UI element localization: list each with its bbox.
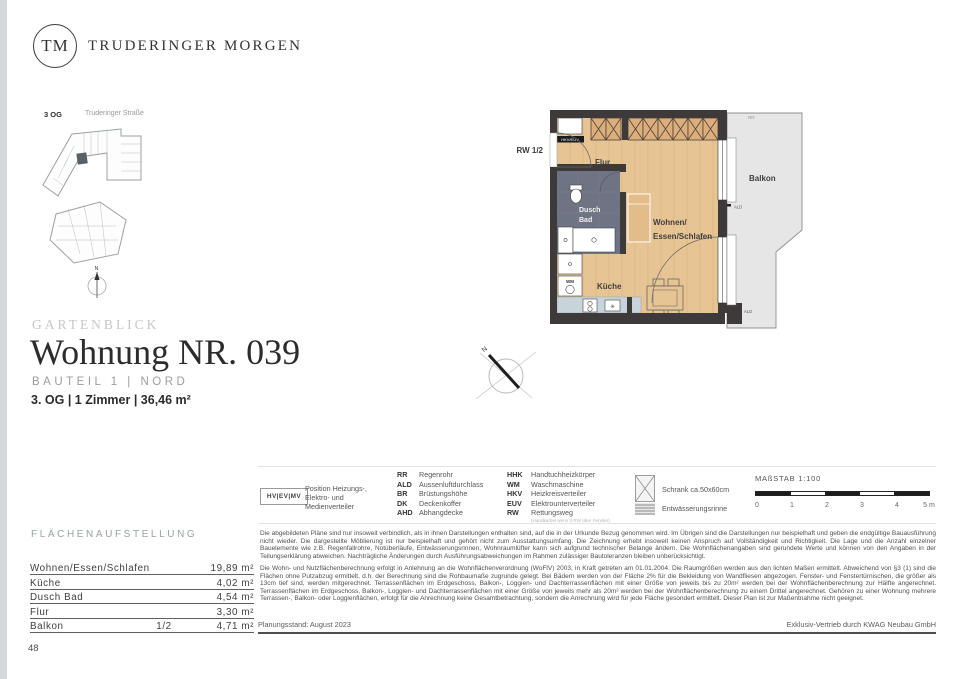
siteplan-north-arrow-icon: N (88, 266, 106, 298)
rettungsweg-note: (Handkurbel wenn 2.RW über Fenster) (507, 518, 632, 523)
washing-machine-label: WM (566, 279, 574, 284)
scale-segment (825, 492, 860, 495)
room-label-wohnen-2: Essen/Schlafen (653, 232, 712, 241)
hvevmv-cabinet (558, 118, 582, 134)
building-section-label: BAUTEIL 1 | NORD (32, 376, 188, 388)
disclaimer-paragraph-1: Die abgebildeten Pläne sind nur insoweit… (260, 530, 936, 560)
annotation-rr: RR (748, 115, 755, 120)
wall-bottom (550, 313, 725, 324)
annotation-ald-top: ALD (734, 205, 742, 210)
brand-logo-icon: TM (33, 24, 77, 68)
divider-top (258, 466, 936, 467)
page-edge-strip (0, 0, 7, 679)
wall-left-lower (550, 167, 557, 313)
siteplan-north-label: N (95, 266, 99, 272)
room-label-dusch: Dusch (579, 207, 600, 214)
table-row: Dusch Bad 4,54 m² (30, 590, 254, 604)
entrance-opening (550, 133, 557, 167)
brand-name: TRUDERINGER MORGEN (88, 38, 302, 55)
wall-stub-balcony (727, 303, 742, 324)
schrank-label: Schrank ca.50x60cm (662, 485, 729, 494)
scale-tick: 0 (755, 502, 759, 509)
hvevmv-description: Position Heizungs-, Elektro- und Medienv… (305, 484, 383, 511)
bathroom-wall-seg1 (620, 164, 626, 172)
legend-item: RWRettungsweg (507, 508, 632, 518)
legend-item: HHKHandtuchheizkörper (507, 470, 632, 480)
closet-divider-wall (622, 118, 628, 140)
legend-item: ALDAussenluftdurchlass (397, 480, 515, 490)
siteplan-upper-wing (43, 129, 141, 196)
room-label-wohnen-1: Wohnen/ (653, 218, 687, 227)
scale-tick: 2 (825, 502, 829, 509)
legend-item: AHDAbhangdecke (397, 508, 515, 518)
footer-rule (258, 632, 936, 634)
siteplan-drawing: N (28, 122, 168, 307)
balcony-area (727, 113, 802, 328)
escape-route-label: RW 1/2 (503, 146, 543, 155)
areas-heading: FLÄCHENAUFSTELLUNG (31, 529, 197, 540)
table-row: Wohnen/Essen/Schlafen 19,89 m² (30, 561, 254, 575)
scale-tick: 4 (895, 502, 899, 509)
scale-segment (791, 492, 826, 495)
scale-bar (755, 491, 930, 496)
wall-right-seg2 (718, 200, 727, 237)
fan-symbol-icon: ✳ (610, 304, 615, 311)
bathroom-wall-seg2 (620, 192, 626, 254)
areas-table: Wohnen/Essen/Schlafen 19,89 m² Küche 4,0… (30, 561, 254, 633)
compass-north-label: N (481, 345, 489, 354)
legend-column-2: HHKHandtuchheizkörper WMWaschmaschine HK… (507, 470, 632, 523)
siteplan-street-label: Truderinger Straße (85, 110, 144, 117)
shower-tray (558, 227, 573, 253)
table-row: Balkon 1/2 4,71 m² (30, 619, 254, 633)
distribution-credit: Exklusiv-Vertrieb durch KWAG Neubau GmbH (600, 620, 936, 629)
legend-item: WMWaschmaschine (507, 480, 632, 490)
scale-tick: 5 m (923, 502, 935, 509)
hvevmv-legend-box: HV|EV|MV (260, 488, 308, 505)
scale-segment (860, 492, 895, 495)
bathroom-top-wall (557, 164, 620, 171)
legend-item: EUVElektrounterverteiler (507, 499, 632, 509)
room-label-flur: Flur (595, 158, 610, 167)
scale-segment (894, 492, 929, 495)
bed (628, 194, 650, 242)
room-label-balkon: Balkon (749, 174, 776, 183)
table-row: Küche 4,02 m² (30, 575, 254, 589)
room-label-bad: Bad (579, 217, 592, 224)
scale-tick: 1 (790, 502, 794, 509)
schrank-icon (635, 475, 655, 502)
brochure-page: TM TRUDERINGER MORGEN 3 OG Truderinger S… (0, 0, 960, 679)
table-row: Flur 3,30 m² (30, 604, 254, 618)
legend-item: RRRegenrohr (397, 470, 515, 480)
floorplan-drawing: HKV/EUV Dusch Bad WM ✳ (543, 100, 813, 415)
annotation-ald-bottom: ALD (744, 309, 752, 314)
wall-left-upper (550, 110, 557, 133)
divider-bottom (258, 523, 936, 524)
wall-right-seg3 (718, 303, 727, 313)
kitchen-sink-unit (558, 254, 582, 274)
hkveuv-label: HKV/EUV (561, 137, 579, 142)
window-1-sill (727, 138, 736, 202)
balcony-door-sill (727, 235, 736, 305)
siteplan-highlighted-unit (76, 152, 87, 164)
entwaesserungsrinne-icon (635, 503, 655, 515)
legend-column-1: RRRegenrohr ALDAussenluftdurchlass BRBrü… (397, 470, 515, 518)
ald-tick-top (727, 204, 731, 207)
brand-initials: TM (41, 36, 69, 56)
scale-tick: 3 (860, 502, 864, 509)
legend-item: DKDeckenkoffer (397, 499, 515, 509)
page-title: Wohnung NR. 039 (30, 331, 300, 373)
planning-status: Planungsstand: August 2023 (258, 620, 351, 629)
scale-segment (756, 492, 791, 495)
siteplan-floor-label: 3 OG (44, 110, 62, 119)
rinne-label: Entwässerungsrinne (662, 504, 727, 513)
floorplan-north-compass-icon: N (462, 336, 546, 408)
room-label-kueche: Küche (597, 282, 622, 291)
vanity (573, 228, 615, 252)
legend-item: BRBrüstungshöhe (397, 489, 515, 499)
wall-right-seg1 (718, 110, 727, 140)
siteplan-lower-wing (50, 202, 126, 263)
wardrobe-closets (591, 118, 718, 140)
legend-item: HKVHeizkreisverteiler (507, 489, 632, 499)
page-number: 48 (28, 643, 39, 654)
kitchen-wall-stub (627, 297, 632, 313)
wall-top (550, 110, 725, 118)
toilet (571, 189, 582, 203)
apartment-details: 3. OG | 1 Zimmer | 36,46 m² (31, 393, 191, 407)
disclaimer-paragraph-2: Die Wohn- und Nutzflächenberechnung erfo… (260, 565, 936, 603)
scale-title: MAßSTAB 1:100 (755, 474, 821, 483)
